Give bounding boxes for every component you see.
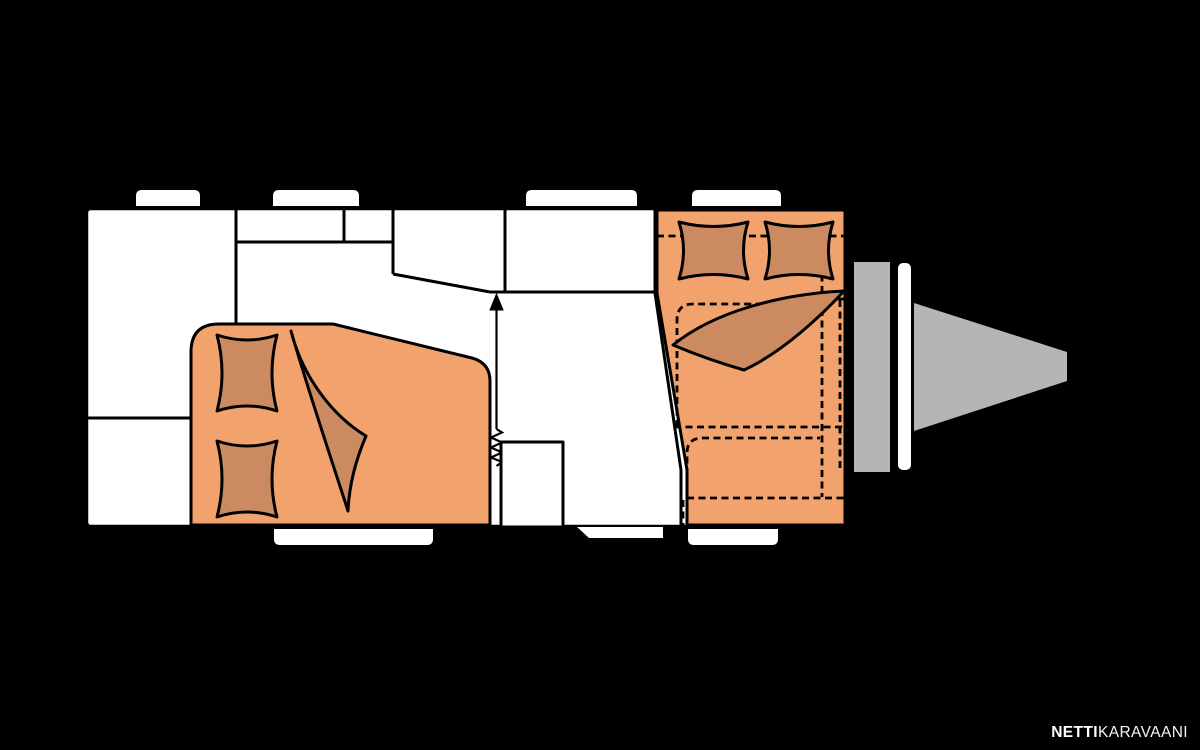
brand-watermark: NETTIKARAVAANI: [1051, 724, 1188, 742]
pillow-icon-rear-2: [765, 222, 833, 279]
pillow-icon-front-2: [217, 441, 277, 517]
rail-tab-bottom-left: [274, 529, 433, 545]
tow-hitch-bar: [898, 263, 911, 470]
pillow-icon-rear-1: [679, 222, 748, 279]
entry-step: [577, 527, 663, 538]
window-tab-1: [136, 190, 200, 206]
floorplan-drawing: [0, 0, 1200, 750]
pillow-icon-front-1: [217, 335, 277, 411]
scene: NETTIKARAVAANI: [0, 0, 1200, 750]
brand-watermark-bold: NETTI: [1051, 724, 1098, 741]
window-tab-4: [692, 190, 781, 206]
rail-tab-bottom-right: [688, 529, 778, 545]
entrance-cabinet-box: [501, 442, 563, 527]
window-tab-3: [526, 190, 637, 206]
brand-watermark-light: KARAVAANI: [1098, 724, 1188, 741]
tow-hitch-plate: [854, 262, 890, 472]
window-tab-2: [273, 190, 359, 206]
